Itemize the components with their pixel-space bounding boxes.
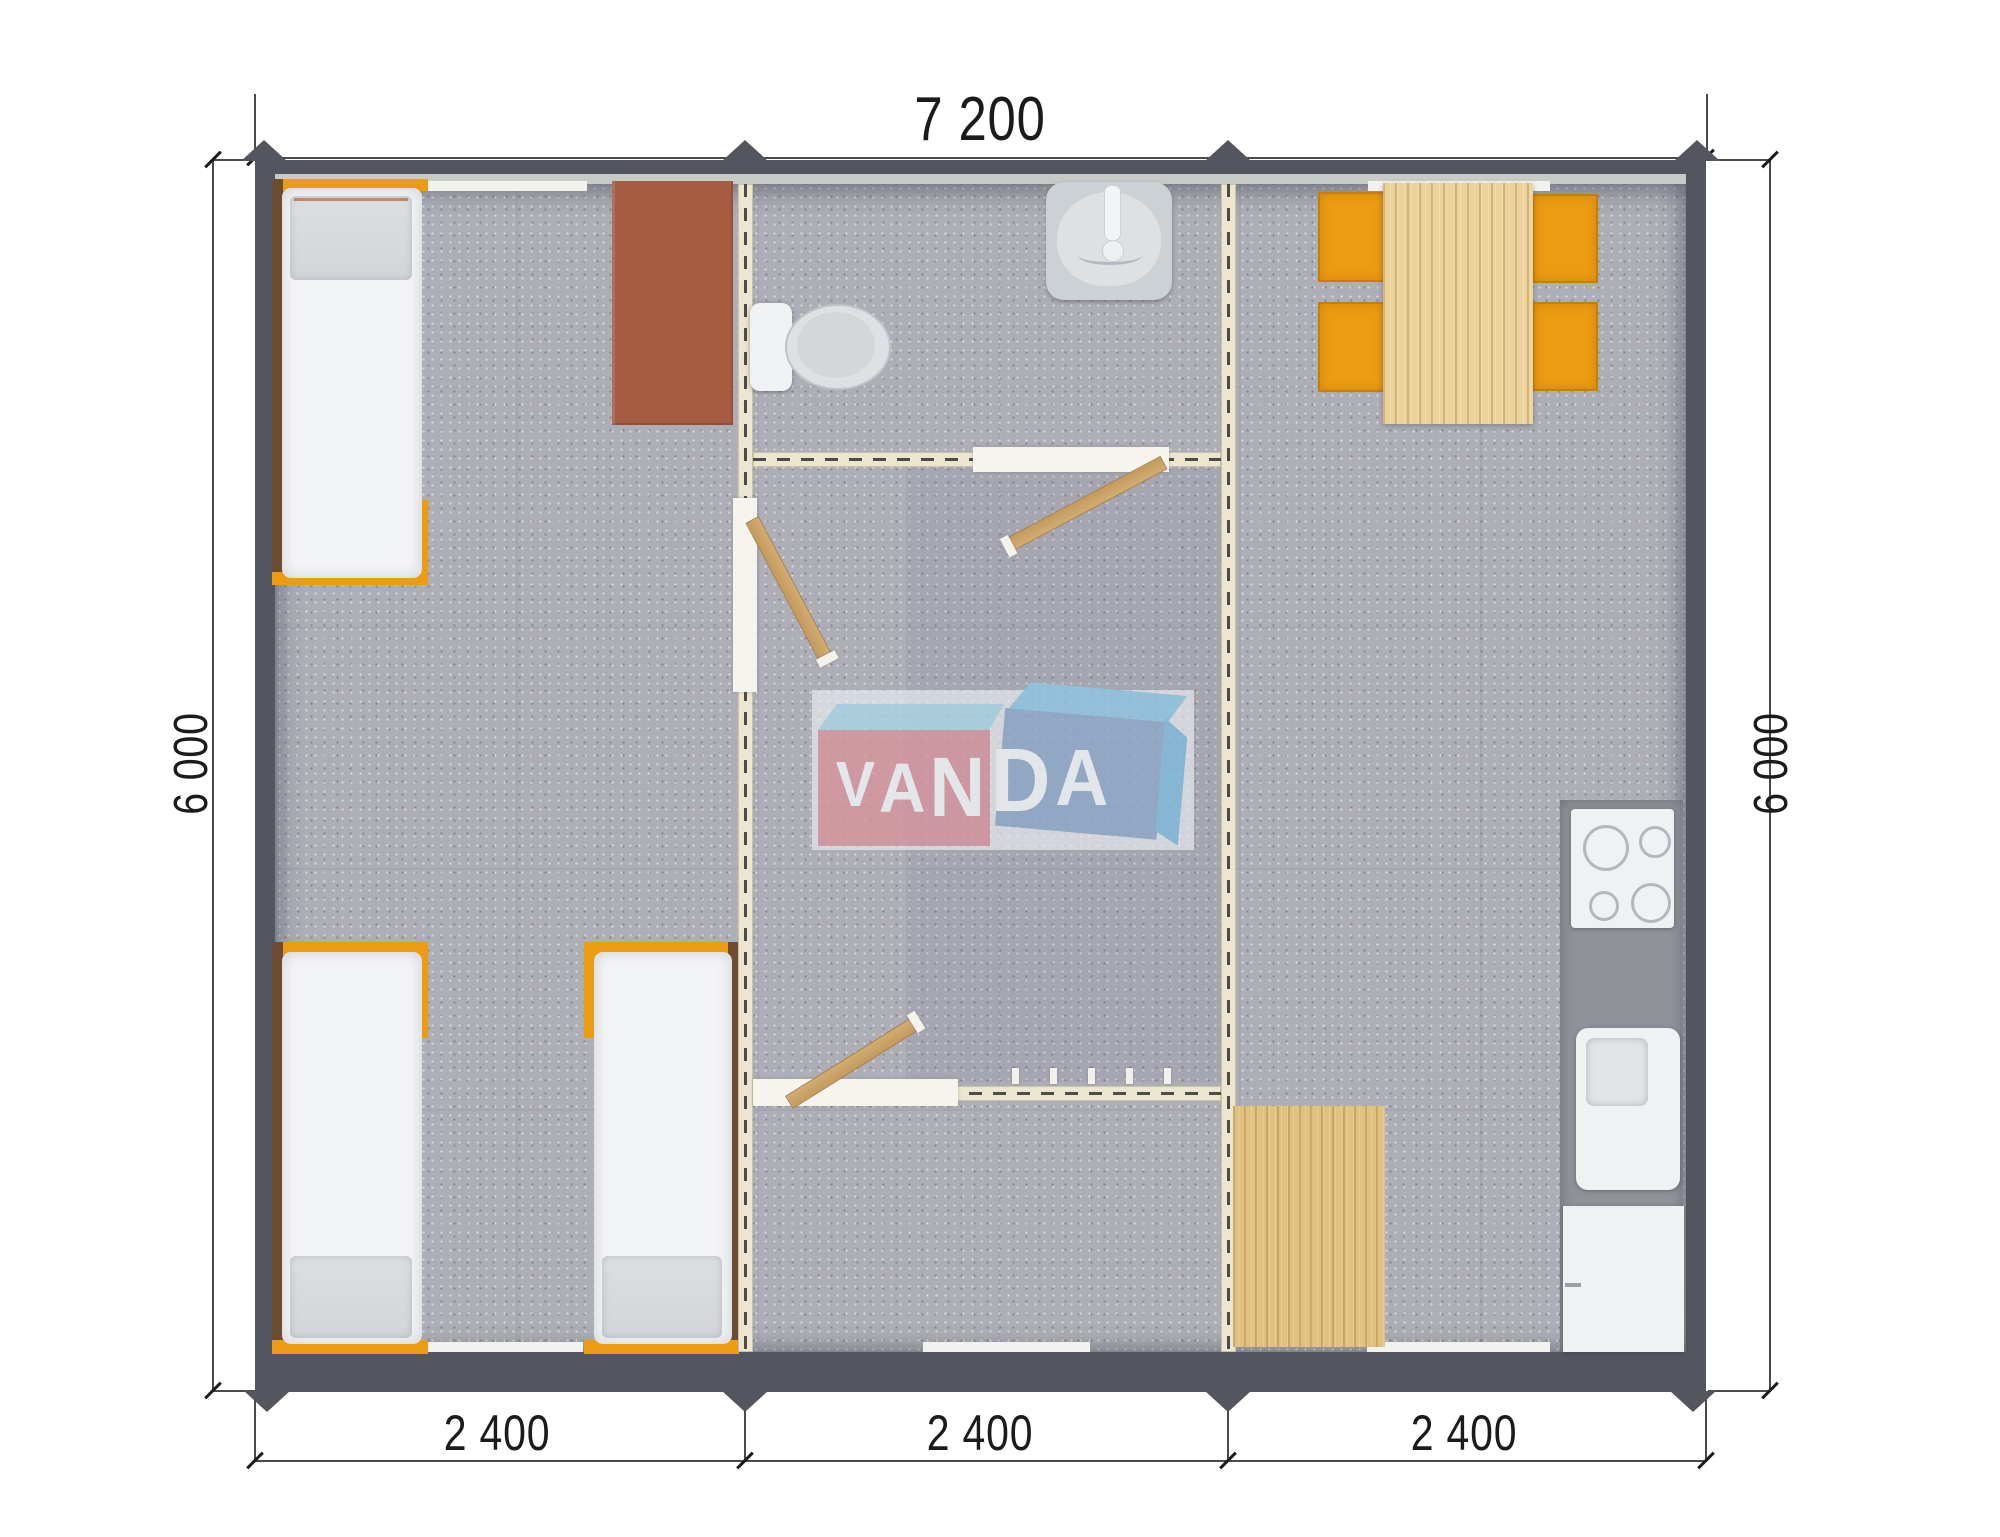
dimension-line-top: [255, 157, 1706, 159]
door-opening: [753, 1079, 958, 1106]
dimension-label-left: 6 000: [164, 611, 216, 915]
roof-tab: [722, 140, 768, 161]
dimension-extension: [1708, 1390, 1770, 1392]
bed-pillow: [290, 196, 412, 280]
coat-hook: [1088, 1068, 1095, 1084]
cabinet-handle: [1565, 1283, 1581, 1287]
bed-pillow: [602, 1256, 722, 1338]
floor-plan-page: { "title": "VANDA modular cabin floor pl…: [0, 0, 2000, 1537]
dimension-label-right: 6 000: [1744, 611, 1796, 915]
desk: [612, 181, 733, 425]
chair: [1318, 302, 1386, 392]
roof-tab: [1205, 140, 1251, 161]
faucet-icon: [1104, 185, 1121, 241]
toilet-seat: [797, 312, 875, 378]
kitchen-cabinet: [1563, 1206, 1684, 1352]
chair: [1532, 194, 1598, 283]
floor-mat: [1233, 1106, 1385, 1347]
bed-pillow: [290, 1256, 412, 1338]
kitchen-sink-basin: [1586, 1038, 1648, 1106]
sink-overflow-line: [1078, 246, 1142, 265]
coat-hook: [1164, 1068, 1171, 1084]
stove-burner: [1639, 826, 1671, 858]
stove-burner: [1631, 883, 1671, 923]
roof-tab: [244, 1391, 290, 1412]
bed-headboard-line: [294, 198, 408, 201]
dimension-label-module-2: 2 400: [739, 1404, 1222, 1462]
coat-hook: [1126, 1068, 1133, 1084]
roof-tab: [1670, 1391, 1716, 1412]
logo: V A N D A: [812, 682, 1198, 862]
dimension-label-module-3: 2 400: [1222, 1404, 1706, 1462]
dimension-label-module-1: 2 400: [255, 1404, 739, 1462]
roof-tab: [1205, 1391, 1251, 1412]
coat-hook: [1050, 1068, 1057, 1084]
stove-burner: [1589, 891, 1619, 921]
roof-tab: [241, 140, 287, 161]
chair: [1532, 302, 1598, 391]
logo-text: V A N D A: [834, 734, 1184, 820]
coat-hook: [1012, 1068, 1019, 1084]
dimension-label-top: 7 200: [255, 84, 1706, 144]
logo-box-pink-top: [818, 704, 1004, 730]
window: [1367, 1342, 1550, 1352]
roof-tab: [722, 1391, 768, 1412]
chair: [1318, 192, 1386, 282]
stove-burner: [1583, 825, 1629, 871]
window: [403, 181, 587, 191]
window: [403, 1342, 583, 1352]
dining-table: [1383, 183, 1533, 424]
window: [923, 1342, 1090, 1352]
roof-tab: [1674, 140, 1720, 161]
